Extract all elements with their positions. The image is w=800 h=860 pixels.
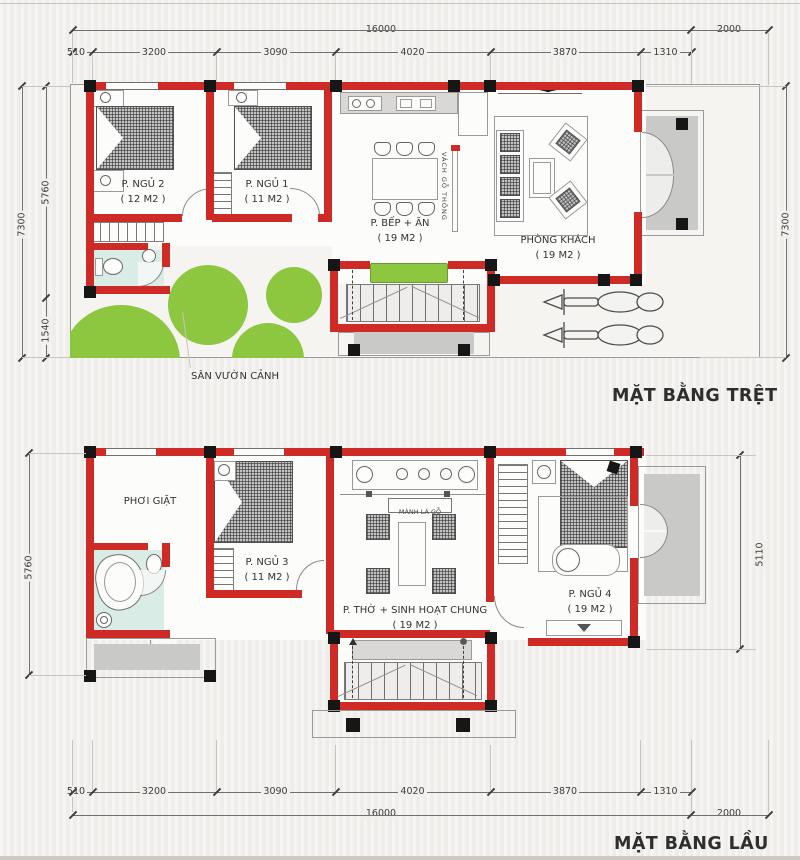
wall-segment xyxy=(490,276,642,284)
room-area: ( 19 M2 ) xyxy=(535,250,580,261)
dim-seg: 1310 xyxy=(651,786,679,797)
dim-seg: 4020 xyxy=(398,786,426,797)
wall-segment xyxy=(330,324,495,332)
closet-icon xyxy=(90,222,164,242)
stair-treads xyxy=(346,284,480,322)
wall-segment xyxy=(86,448,644,456)
wall-segment xyxy=(212,214,292,222)
dim-left-upper: 5760 xyxy=(41,178,52,206)
dining-table xyxy=(372,158,438,200)
wall-segment xyxy=(86,214,182,222)
column-marker xyxy=(204,80,216,92)
laundry-ledge xyxy=(94,644,200,670)
column-marker xyxy=(630,446,642,458)
sofa-cushion xyxy=(500,199,520,218)
fan-icon xyxy=(537,465,551,479)
stair-direction-line xyxy=(463,646,464,698)
wall-segment xyxy=(330,702,495,710)
stair-up-arrow xyxy=(349,638,357,645)
wall-segment xyxy=(330,261,338,332)
extension-line xyxy=(29,453,86,454)
coffee-table-inner xyxy=(533,162,551,194)
wall-segment xyxy=(634,90,642,132)
burner-icon xyxy=(352,99,361,108)
room-label: P. NGỦ 1 ( 11 M2 ) xyxy=(217,178,317,207)
dim-seg-box: 4020 xyxy=(335,779,490,790)
extension-line xyxy=(768,740,769,812)
garden-shrub xyxy=(232,323,304,358)
column-marker xyxy=(488,274,500,286)
dim-seg-box: 3870 xyxy=(490,779,640,790)
column-marker xyxy=(330,80,342,92)
stair-direction-line xyxy=(352,270,353,320)
column-marker xyxy=(632,80,644,92)
wall-segment xyxy=(338,261,370,269)
dim-line xyxy=(690,30,768,31)
partition-label: VÁCH GỖ THÔNG xyxy=(440,152,448,221)
dim-seg: 3200 xyxy=(140,47,168,58)
dim-right-overall: 7300 xyxy=(781,210,792,238)
room-area: ( 12 M2 ) xyxy=(120,194,165,205)
dim-seg-box: 3090 xyxy=(216,779,335,790)
bench-cushion xyxy=(556,548,580,572)
garden-label: SÂN VƯỜN CẢNH xyxy=(170,370,300,385)
dim-top-side-box: 2000 xyxy=(690,17,768,29)
extension-line xyxy=(216,55,217,83)
extension-line xyxy=(646,455,756,456)
wall-segment xyxy=(206,456,214,596)
window-icon xyxy=(106,82,158,90)
sofa-cushion xyxy=(500,177,520,196)
wall-segment xyxy=(162,243,170,267)
extension-line xyxy=(691,33,692,85)
lamp-icon xyxy=(218,464,230,476)
sink-basin xyxy=(400,99,412,108)
room-area: ( 19 M2 ) xyxy=(567,604,612,615)
room-name: P. THỜ + SINH HOẠT CHUNG xyxy=(343,605,487,616)
dim-left-overall: 7300 xyxy=(17,210,28,238)
extension-line xyxy=(22,357,70,358)
room-area: ( 19 M2 ) xyxy=(392,620,437,631)
room-label: P. NGỦ 4 ( 19 M2 ) xyxy=(538,588,642,617)
extension-line xyxy=(640,55,641,83)
column-marker xyxy=(676,218,688,230)
column-marker xyxy=(630,274,642,286)
room-name: P. NGỦ 2 xyxy=(122,179,165,190)
photo-bottom-edge xyxy=(0,856,800,860)
extension-line xyxy=(22,86,70,87)
column-marker xyxy=(448,80,460,92)
dim-right-overall-box: 7300 xyxy=(772,212,800,231)
dim-seg-box: 1310 xyxy=(640,40,691,51)
dim-line xyxy=(690,815,768,816)
chair-icon xyxy=(432,514,456,540)
blind-label-box: MÀNH LÁ GỖ xyxy=(388,498,452,513)
extension-line xyxy=(646,649,756,650)
dim-tick xyxy=(42,354,50,362)
wall-segment xyxy=(206,590,302,598)
room-label: PHƠI GIẶT xyxy=(100,495,200,510)
stair-treads xyxy=(344,662,482,700)
upper-floor-title: MẶT BẰNG LẦU xyxy=(614,834,769,854)
dim-seg-box: 3090 xyxy=(216,40,335,51)
porch-step xyxy=(354,332,474,354)
dim-bottom-total: 16000 xyxy=(364,808,398,819)
wall-segment xyxy=(206,90,214,220)
console-circle xyxy=(440,468,452,480)
column-marker xyxy=(328,259,340,271)
console-circle xyxy=(418,468,430,480)
room-label: PHÒNG KHÁCH ( 19 M2 ) xyxy=(497,234,619,263)
dim-seg-box: 1310 xyxy=(640,779,691,790)
chair-icon xyxy=(432,568,456,594)
room-area: ( 19 M2 ) xyxy=(377,233,422,244)
room-area: ( 11 M2 ) xyxy=(244,194,289,205)
column-marker xyxy=(485,632,497,644)
room-area: ( 11 M2 ) xyxy=(244,572,289,583)
wall-segment xyxy=(86,286,170,294)
column-marker xyxy=(346,718,360,732)
wall-segment xyxy=(86,543,148,550)
dim-upper-right: 5110 xyxy=(755,540,766,568)
railing-post xyxy=(366,491,372,497)
column-marker xyxy=(84,670,96,682)
sofa-cushion xyxy=(500,133,520,152)
stair-start-marker xyxy=(460,638,467,645)
dim-left-upper-box: 5760 xyxy=(32,180,60,199)
wall-segment xyxy=(487,634,495,708)
wall-segment xyxy=(162,543,170,567)
sink-basin xyxy=(420,99,432,108)
dim-seg: 3870 xyxy=(551,47,579,58)
sink-drain xyxy=(100,616,108,624)
extension-line xyxy=(646,86,786,87)
column-marker xyxy=(628,636,640,648)
wall-segment xyxy=(330,630,490,638)
column-marker xyxy=(84,286,96,298)
chair-icon xyxy=(366,568,390,594)
sink-icon xyxy=(142,249,156,263)
railing-line xyxy=(340,494,488,495)
dim-left-lower: 1540 xyxy=(41,316,52,344)
wall-segment xyxy=(630,456,638,506)
sofa-cushion xyxy=(500,155,520,174)
room-name: PHÒNG KHÁCH xyxy=(520,235,595,246)
stair-direction-line xyxy=(463,270,464,320)
dim-seg: 3090 xyxy=(261,786,289,797)
dim-seg-box: 4020 xyxy=(335,40,490,51)
wall-segment xyxy=(86,82,644,90)
cabinet-mark xyxy=(577,624,591,632)
column-marker xyxy=(204,670,216,682)
stair-planter xyxy=(370,263,448,283)
room-label: P. BẾP + ĂN ( 19 M2 ) xyxy=(340,217,460,246)
room-name: P. NGỦ 3 xyxy=(246,557,289,568)
wall-segment xyxy=(448,261,487,269)
dim-seg-box: 3870 xyxy=(490,40,640,51)
dim-left-overall-box: 7300 xyxy=(8,212,36,231)
wall-segment xyxy=(86,550,94,638)
column-marker xyxy=(204,446,216,458)
wall-segment xyxy=(330,634,338,708)
dim-bottom-side: 2000 xyxy=(715,808,743,819)
extension-line xyxy=(490,55,491,83)
dim-upper-right-box: 5110 xyxy=(746,542,774,561)
extension-line xyxy=(72,33,73,83)
wall-segment xyxy=(326,456,334,634)
column-marker xyxy=(484,446,496,458)
console-circle xyxy=(458,466,475,483)
extension-line xyxy=(700,357,786,358)
garden-shrub xyxy=(168,265,248,345)
window-icon xyxy=(566,448,614,456)
dim-upper-left: 5760 xyxy=(24,553,35,581)
room-name: P. NGỦ 4 xyxy=(569,589,612,600)
stair-railing xyxy=(498,464,528,564)
dim-bottom-total-box: 16000 xyxy=(72,801,690,813)
extension-line xyxy=(768,33,769,85)
dim-bottom-side-box: 2000 xyxy=(690,801,768,813)
dim-left-lower-box: 1540 xyxy=(32,318,60,337)
bathtub-inner xyxy=(104,562,136,602)
dim-seg: 3200 xyxy=(140,786,168,797)
dim-tick xyxy=(18,354,26,362)
wall-segment xyxy=(324,90,332,220)
dim-tick xyxy=(782,354,790,362)
wall-segment xyxy=(486,456,494,602)
dim-seg-box: 3200 xyxy=(92,40,216,51)
column-marker xyxy=(676,118,688,130)
garden-shrub xyxy=(266,267,322,323)
column-marker xyxy=(328,632,340,644)
window-icon xyxy=(234,448,284,456)
column-marker xyxy=(84,80,96,92)
floor-plan-canvas: 16000 2000 510 3200 3090 4020 3870 1310 … xyxy=(0,0,800,860)
toilet-icon xyxy=(103,258,123,275)
wall-segment xyxy=(630,558,638,646)
stair-landing xyxy=(352,640,472,660)
wall-segment xyxy=(86,630,170,638)
room-label: P. THỜ + SINH HOẠT CHUNG ( 19 M2 ) xyxy=(330,604,500,633)
column-marker xyxy=(348,344,360,356)
dim-line xyxy=(72,30,690,31)
wall-segment xyxy=(86,243,148,250)
column-marker xyxy=(598,274,610,286)
wall-segment xyxy=(528,638,638,646)
column-marker xyxy=(484,80,496,92)
wall-segment xyxy=(487,261,495,332)
extension-line xyxy=(335,55,336,83)
photo-top-edge-line xyxy=(0,3,800,4)
partition-cap xyxy=(451,145,460,151)
room-name: PHƠI GIẶT xyxy=(124,496,176,507)
dim-seg-box: 3200 xyxy=(92,779,216,790)
table-icon xyxy=(398,522,426,586)
room-label: P. NGỦ 2 ( 12 M2 ) xyxy=(93,178,193,207)
dim-seg: 1310 xyxy=(651,47,679,58)
railing-post xyxy=(444,491,450,497)
wall-segment xyxy=(86,456,94,548)
window-icon xyxy=(234,82,286,90)
room-name: P. BẾP + ĂN xyxy=(370,218,429,229)
column-marker xyxy=(458,344,470,356)
dim-top-total-box: 16000 xyxy=(72,17,690,29)
porch-roof-outline xyxy=(312,710,516,738)
extension-line xyxy=(92,55,93,83)
room-label: P. NGỦ 3 ( 11 M2 ) xyxy=(217,556,317,585)
column-marker xyxy=(485,259,497,271)
dim-seg: 3090 xyxy=(261,47,289,58)
stair-direction-line xyxy=(352,646,353,698)
garden-shrub xyxy=(70,305,180,358)
toilet-tank xyxy=(95,258,103,276)
wall-segment xyxy=(318,214,332,222)
console-circle xyxy=(396,468,408,480)
room-name: P. NGỦ 1 xyxy=(246,179,289,190)
dim-line xyxy=(740,455,741,649)
fridge-icon xyxy=(458,92,488,136)
dim-line xyxy=(72,815,690,816)
lamp-icon xyxy=(236,92,247,103)
motorbikes-icon xyxy=(540,286,680,352)
lamp-icon xyxy=(100,92,111,103)
column-marker xyxy=(84,446,96,458)
column-marker xyxy=(456,718,470,732)
dim-seg: 3870 xyxy=(551,786,579,797)
console-circle xyxy=(356,466,373,483)
extension-line xyxy=(29,675,86,676)
dim-upper-left-box: 5760 xyxy=(15,555,43,574)
chair-icon xyxy=(366,514,390,540)
dim-seg: 4020 xyxy=(398,47,426,58)
burner-icon xyxy=(366,99,375,108)
column-marker xyxy=(330,446,342,458)
window-icon xyxy=(106,448,156,456)
ground-floor-title: MẶT BẰNG TRỆT xyxy=(612,386,777,406)
